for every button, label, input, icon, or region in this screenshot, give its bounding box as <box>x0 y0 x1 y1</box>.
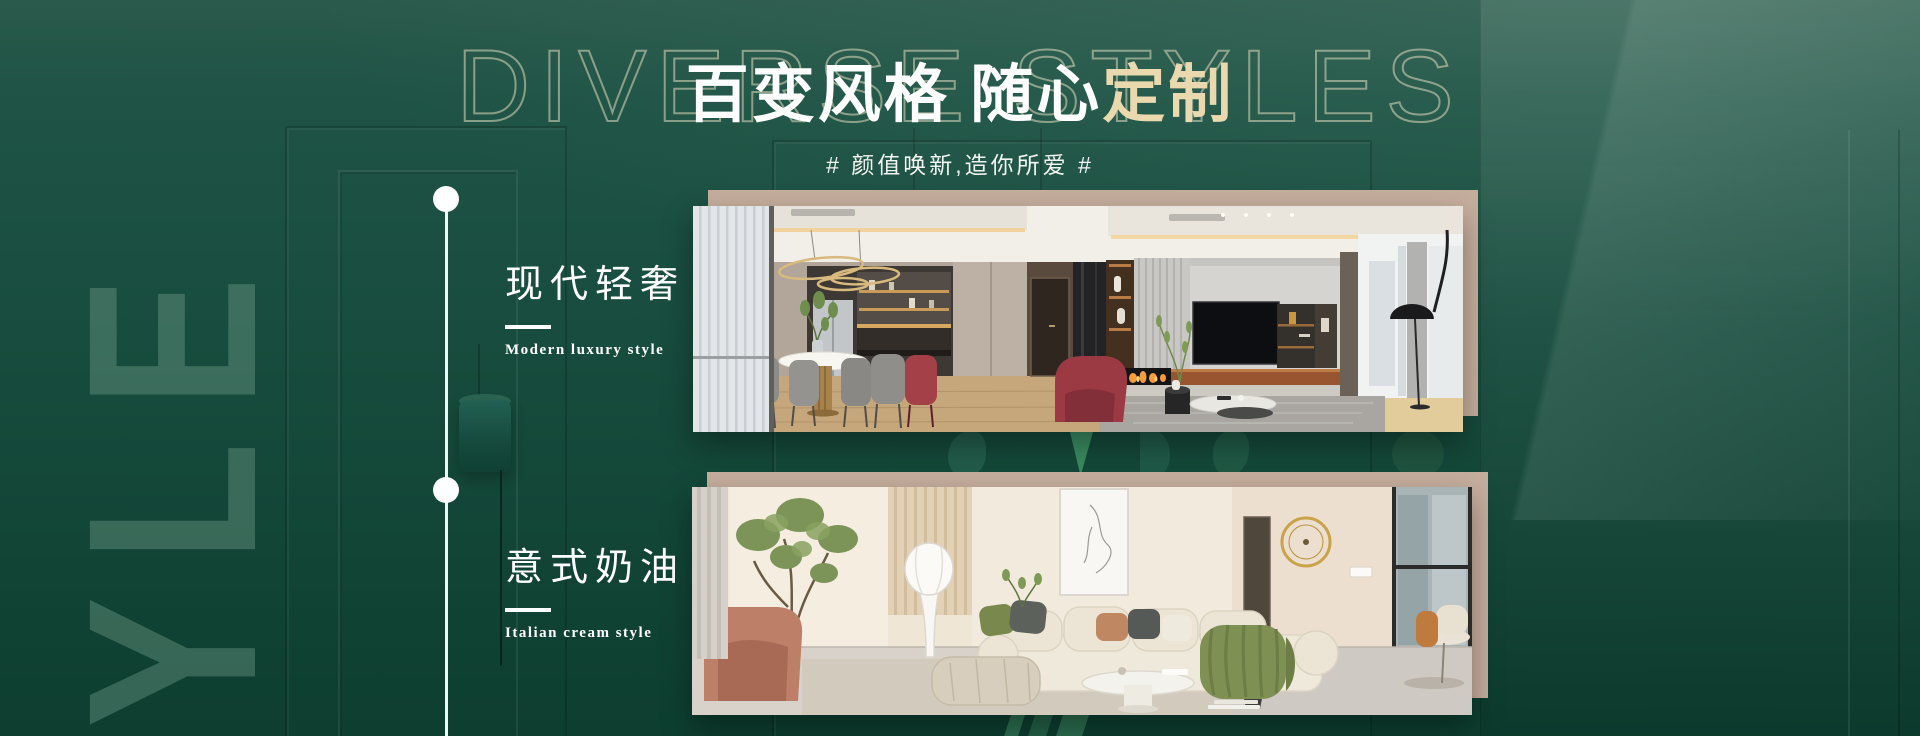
title-accent: 定制 <box>1102 60 1234 130</box>
style-2-divider <box>505 608 551 612</box>
style-label-italian-cream[interactable]: 意式奶油 Italian cream style <box>505 549 685 642</box>
style-label-modern-luxury[interactable]: 现代轻奢 Modern luxury style <box>505 266 685 359</box>
style-1-subtitle: Modern luxury style <box>505 342 685 359</box>
subtitle: # 颜值唤新,造你所爱 # <box>0 146 1920 180</box>
promo-banner: YLE DIVERSE STYLES 百变风格 随心定制 # 颜值唤新,造你所爱… <box>0 0 1920 736</box>
modern-luxury-scene <box>693 206 1463 432</box>
timeline-line <box>445 199 448 736</box>
style-2-subtitle: Italian cream style <box>505 625 685 642</box>
side-vertical-word: YLE <box>52 242 292 728</box>
style-1-divider <box>505 325 551 329</box>
logo-watermark-shape <box>1392 430 1444 478</box>
wall-molding <box>1898 130 1900 736</box>
wall-lamp-cord <box>500 470 502 666</box>
wall-lamp <box>459 400 511 472</box>
title-main: 百变风格 随心 <box>686 60 1103 130</box>
photo-italian-cream[interactable] <box>692 487 1472 715</box>
style-1-name: 现代轻奢 <box>505 266 685 304</box>
style-2-name: 意式奶油 <box>505 549 685 587</box>
wall-molding <box>1848 130 1850 736</box>
photo-modern-luxury[interactable] <box>693 206 1463 432</box>
timeline-dot-2 <box>433 477 459 503</box>
timeline-dot-1 <box>433 186 459 212</box>
logo-watermark-shape <box>1140 431 1170 476</box>
italian-cream-scene <box>692 487 1472 715</box>
page-title: 百变风格 随心定制 <box>0 44 1920 135</box>
